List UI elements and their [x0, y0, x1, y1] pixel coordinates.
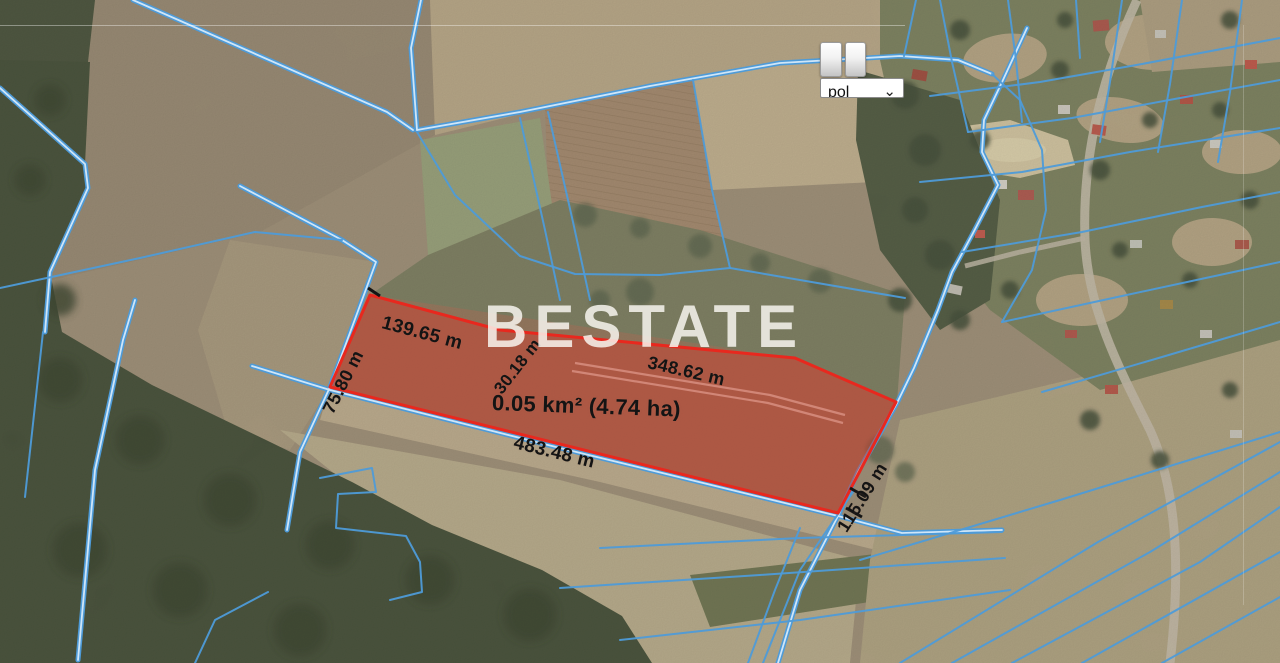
layer-pane-right-icon: [845, 42, 867, 77]
language-select-value: pol: [828, 79, 849, 98]
satellite-map-view[interactable]: 75.80 m 139.65 m 30.18 m 348.62 m 0.05 k…: [0, 0, 1280, 663]
watermark: BESTATE: [484, 292, 804, 361]
language-select[interactable]: pol ⌄: [820, 78, 904, 98]
chevron-down-icon: ⌄: [883, 79, 896, 98]
layer-pane-left-icon: [820, 42, 842, 77]
tile-seam-vertical: [1243, 25, 1244, 605]
tile-seam-horizontal: [0, 25, 905, 26]
layer-switcher-button[interactable]: [820, 42, 866, 77]
